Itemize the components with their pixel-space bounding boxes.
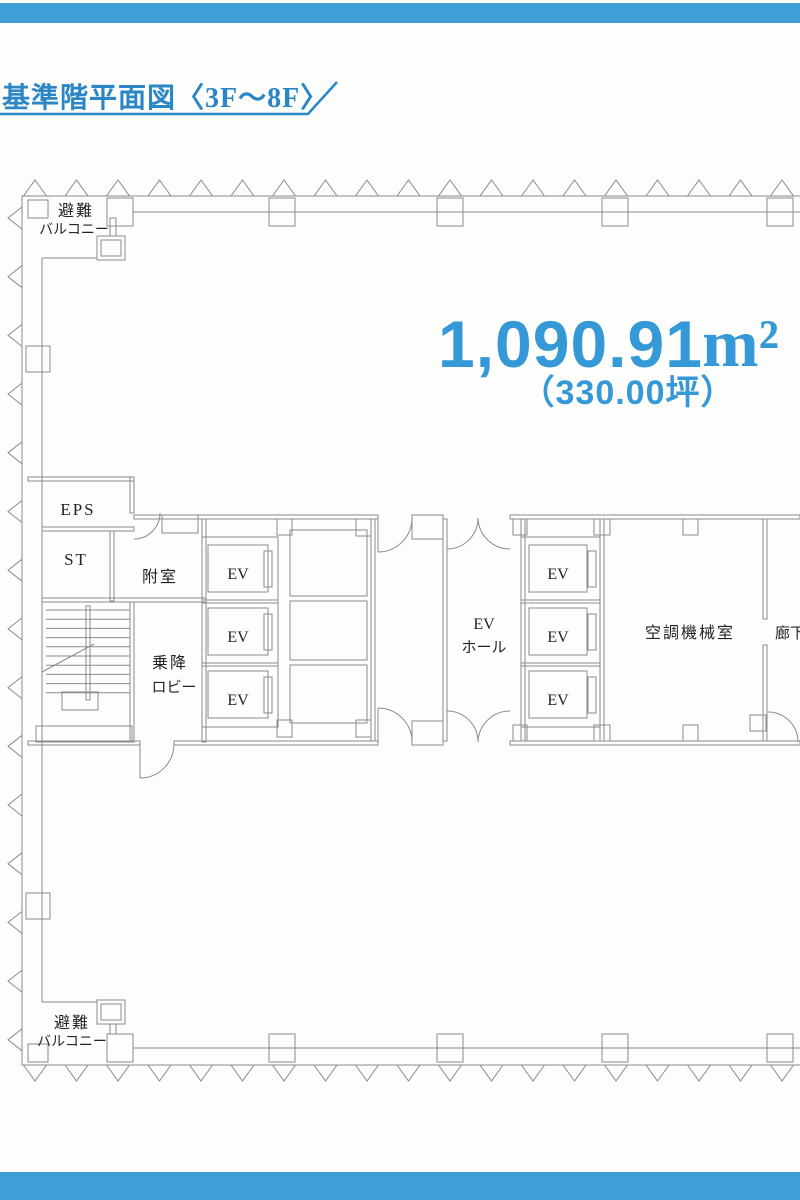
area-figures: 1,090.91 m² （330.00坪）	[438, 305, 779, 412]
area-tsubo: （330.00坪）	[521, 373, 736, 412]
label-ev-hall-2: ホール	[461, 640, 506, 656]
label-balcony-bottom-2: バルコニー	[37, 1035, 107, 1050]
label-ev-6: EV	[547, 692, 569, 709]
label-ev-hall-1: EV	[473, 616, 495, 633]
label-ev-4: EV	[547, 566, 569, 583]
lobby-door	[140, 744, 174, 778]
window-markers-top	[24, 180, 794, 196]
elevator-shafts	[277, 519, 371, 737]
label-st: ST	[64, 550, 88, 569]
label-anteroom: 附室	[142, 568, 178, 586]
floorplan-page: 基準階平面図〈3F〜8F〉 1,090.91 m² （330.00坪）	[0, 0, 800, 1200]
label-corridor: 廊下	[775, 625, 800, 642]
label-hvac-room: 空調機械室	[645, 624, 735, 642]
label-balcony-top-2: バルコニー	[39, 223, 109, 238]
label-balcony-top-1: 避難	[58, 202, 94, 220]
label-balcony-bottom-1: 避難	[54, 1014, 90, 1032]
label-lobby-1: 乗降	[152, 654, 188, 672]
brochure-page: 基準階平面図〈3F〜8F〉 1,090.91 m² （330.00坪）	[0, 0, 800, 1200]
label-ev-1: EV	[227, 566, 249, 583]
top-accent-bar	[0, 3, 800, 23]
label-ev-5: EV	[547, 629, 569, 646]
area-value: 1,090.91	[438, 307, 703, 381]
label-eps: EPS	[60, 500, 95, 519]
label-lobby-2: ロビー	[151, 679, 196, 696]
window-markers-left	[8, 207, 22, 1051]
label-ev-2: EV	[227, 629, 249, 646]
staircase	[36, 602, 134, 742]
label-ev-3: EV	[227, 692, 249, 709]
area-unit: m²	[702, 305, 779, 381]
bottom-accent-bar	[0, 1172, 800, 1200]
window-markers-bottom	[24, 1065, 794, 1081]
page-title: 基準階平面図〈3F〜8F〉	[2, 81, 329, 114]
mid-corridor	[371, 515, 443, 745]
wall-columns-left	[26, 200, 50, 1062]
